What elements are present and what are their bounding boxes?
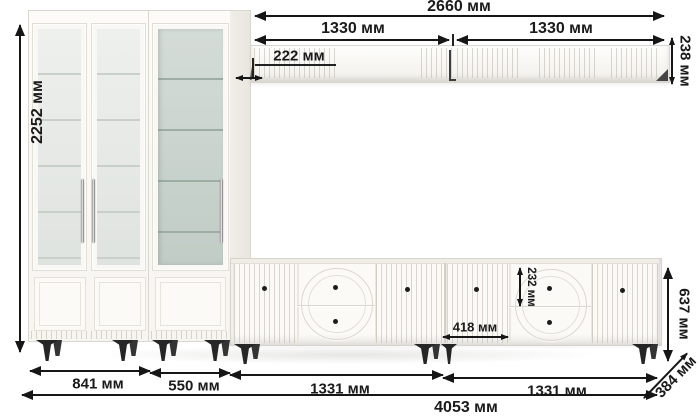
dim-line-1331-right: [443, 377, 657, 379]
shelf-fluting: [457, 48, 519, 78]
dim-line-tv-door-width: [443, 336, 508, 338]
display-cabinet-single: [148, 10, 232, 342]
dim-line-shelf-depth: [236, 77, 262, 79]
door-knob: [262, 286, 267, 291]
dim-line-drawer-height: [519, 268, 521, 306]
drawer-knob: [547, 286, 552, 291]
glass-panel: [38, 29, 81, 265]
dim-line-cabinet-height: [19, 25, 21, 352]
shelf-fluting: [539, 48, 599, 78]
tv-door-fluted: [591, 264, 661, 343]
dim-line-tv-height: [667, 268, 669, 361]
glass-panel: [97, 29, 140, 265]
shelf-joint-mark: [449, 50, 456, 81]
dim-line-1331-left: [230, 374, 443, 376]
lower-door-panel: [155, 277, 226, 331]
dim-label-shelf-depth: 222 мм: [273, 48, 324, 65]
tinted-glass-panel: [158, 29, 223, 265]
dim-label-4053: 4053 мм: [434, 399, 498, 417]
dim-line-shelf-height: [671, 38, 673, 84]
dim-leader-tick: [252, 58, 254, 77]
drawer-ring-inner: [308, 275, 366, 333]
lower-door-panel: [34, 277, 86, 331]
door-handle: [220, 179, 223, 243]
drawer-knob: [333, 285, 338, 290]
dim-label-550: 550 мм: [168, 378, 219, 395]
door-knob: [405, 287, 410, 292]
lower-door-panel: [94, 277, 146, 331]
door-handle: [81, 179, 84, 243]
dim-label-cabinet-height: 2252 мм: [29, 80, 47, 144]
tv-door-fluted: [233, 264, 299, 343]
drawer-ring-emboss: [301, 268, 373, 340]
door-knob: [620, 288, 625, 293]
fluted-base-strip: [31, 331, 145, 339]
dim-label-tv-door-width: 418 мм: [453, 320, 498, 335]
dim-label-1331-left: 1331 мм: [310, 381, 370, 398]
dim-label-shelf-left: 1330 мм: [321, 20, 385, 38]
drawer-knob: [333, 319, 338, 324]
dim-label-1331-right: 1331 мм: [527, 383, 587, 400]
dim-label-841: 841 мм: [72, 376, 123, 393]
cabinet-side-panel: [230, 10, 251, 260]
tv-door-fluted: [375, 264, 446, 343]
glass-door: [152, 23, 229, 271]
floor-shadow: [20, 344, 675, 370]
dim-label-drawer-height: 232 мм: [525, 267, 537, 306]
dim-label-shelf-total: 2660 мм: [427, 0, 491, 16]
dim-label-shelf-height: 238 мм: [677, 35, 694, 86]
tv-stand: [230, 258, 662, 346]
dim-line-841: [30, 370, 150, 372]
dim-line-550: [150, 372, 230, 374]
shelf-fluting: [611, 48, 659, 78]
furniture-diagram: 2660 мм 1330 мм 1330 мм 238 мм 222 мм 22…: [0, 0, 700, 418]
glass-door-left: [32, 23, 87, 271]
glass-cabinet-double: [28, 10, 150, 342]
dim-line-shelf-right: [457, 39, 664, 41]
glass-door-right: [91, 23, 146, 271]
door-handle: [92, 179, 95, 243]
fluted-base-strip: [151, 331, 227, 339]
dim-label-shelf-right: 1330 мм: [529, 20, 593, 38]
door-knob: [474, 287, 479, 292]
dim-line-shelf-left: [255, 39, 449, 41]
drawer-knob: [547, 320, 552, 325]
tv-stand-joint: [444, 263, 446, 343]
dim-tick: [452, 34, 454, 46]
dim-label-tv-height: 637 мм: [676, 288, 693, 339]
